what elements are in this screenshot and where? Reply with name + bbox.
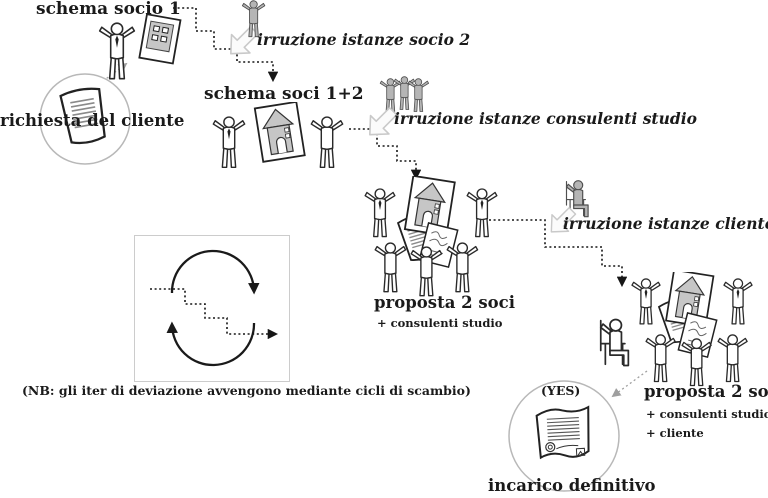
stage4-sub2-label: + cliente bbox=[646, 427, 704, 440]
exchange-cycle-icon bbox=[135, 236, 289, 381]
proposal-group-icon bbox=[362, 176, 502, 304]
process-diagram: schema socio 1 irruzione istanze socio 2… bbox=[0, 0, 768, 498]
irruzione3-label: irruzione istanze cliente bbox=[563, 215, 768, 233]
irruzione1-label: irruzione istanze socio 2 bbox=[257, 31, 470, 49]
stage1-label: schema socio 1 bbox=[36, 0, 181, 20]
cycle-arc-top bbox=[172, 251, 254, 293]
legend-note: (NB: gli iter di deviazione avvengono me… bbox=[22, 384, 471, 398]
stage4-sub1-label: + consulenti studio bbox=[646, 408, 768, 421]
outcome-label: incarico definitivo bbox=[488, 477, 656, 496]
stage2-label: schema soci 1+2 bbox=[204, 85, 364, 105]
stage4-label: proposta 2 soci bbox=[644, 383, 768, 402]
outcome-badge: (YES) bbox=[541, 384, 580, 398]
stage3-label: proposta 2 soci bbox=[374, 294, 515, 313]
stage3-sub-label: + consulenti studio bbox=[377, 317, 502, 330]
cycle-arc-bottom bbox=[172, 323, 254, 365]
full-group-with-client-icon bbox=[593, 272, 768, 392]
exchange-cycle-legend bbox=[134, 235, 290, 382]
cycle-staircase-path bbox=[150, 289, 276, 334]
client-request-label: richiesta del cliente bbox=[0, 112, 184, 131]
two-partners-schema-icon bbox=[210, 102, 350, 192]
irruzione2-label: irruzione istanze consulenti studio bbox=[394, 110, 697, 128]
